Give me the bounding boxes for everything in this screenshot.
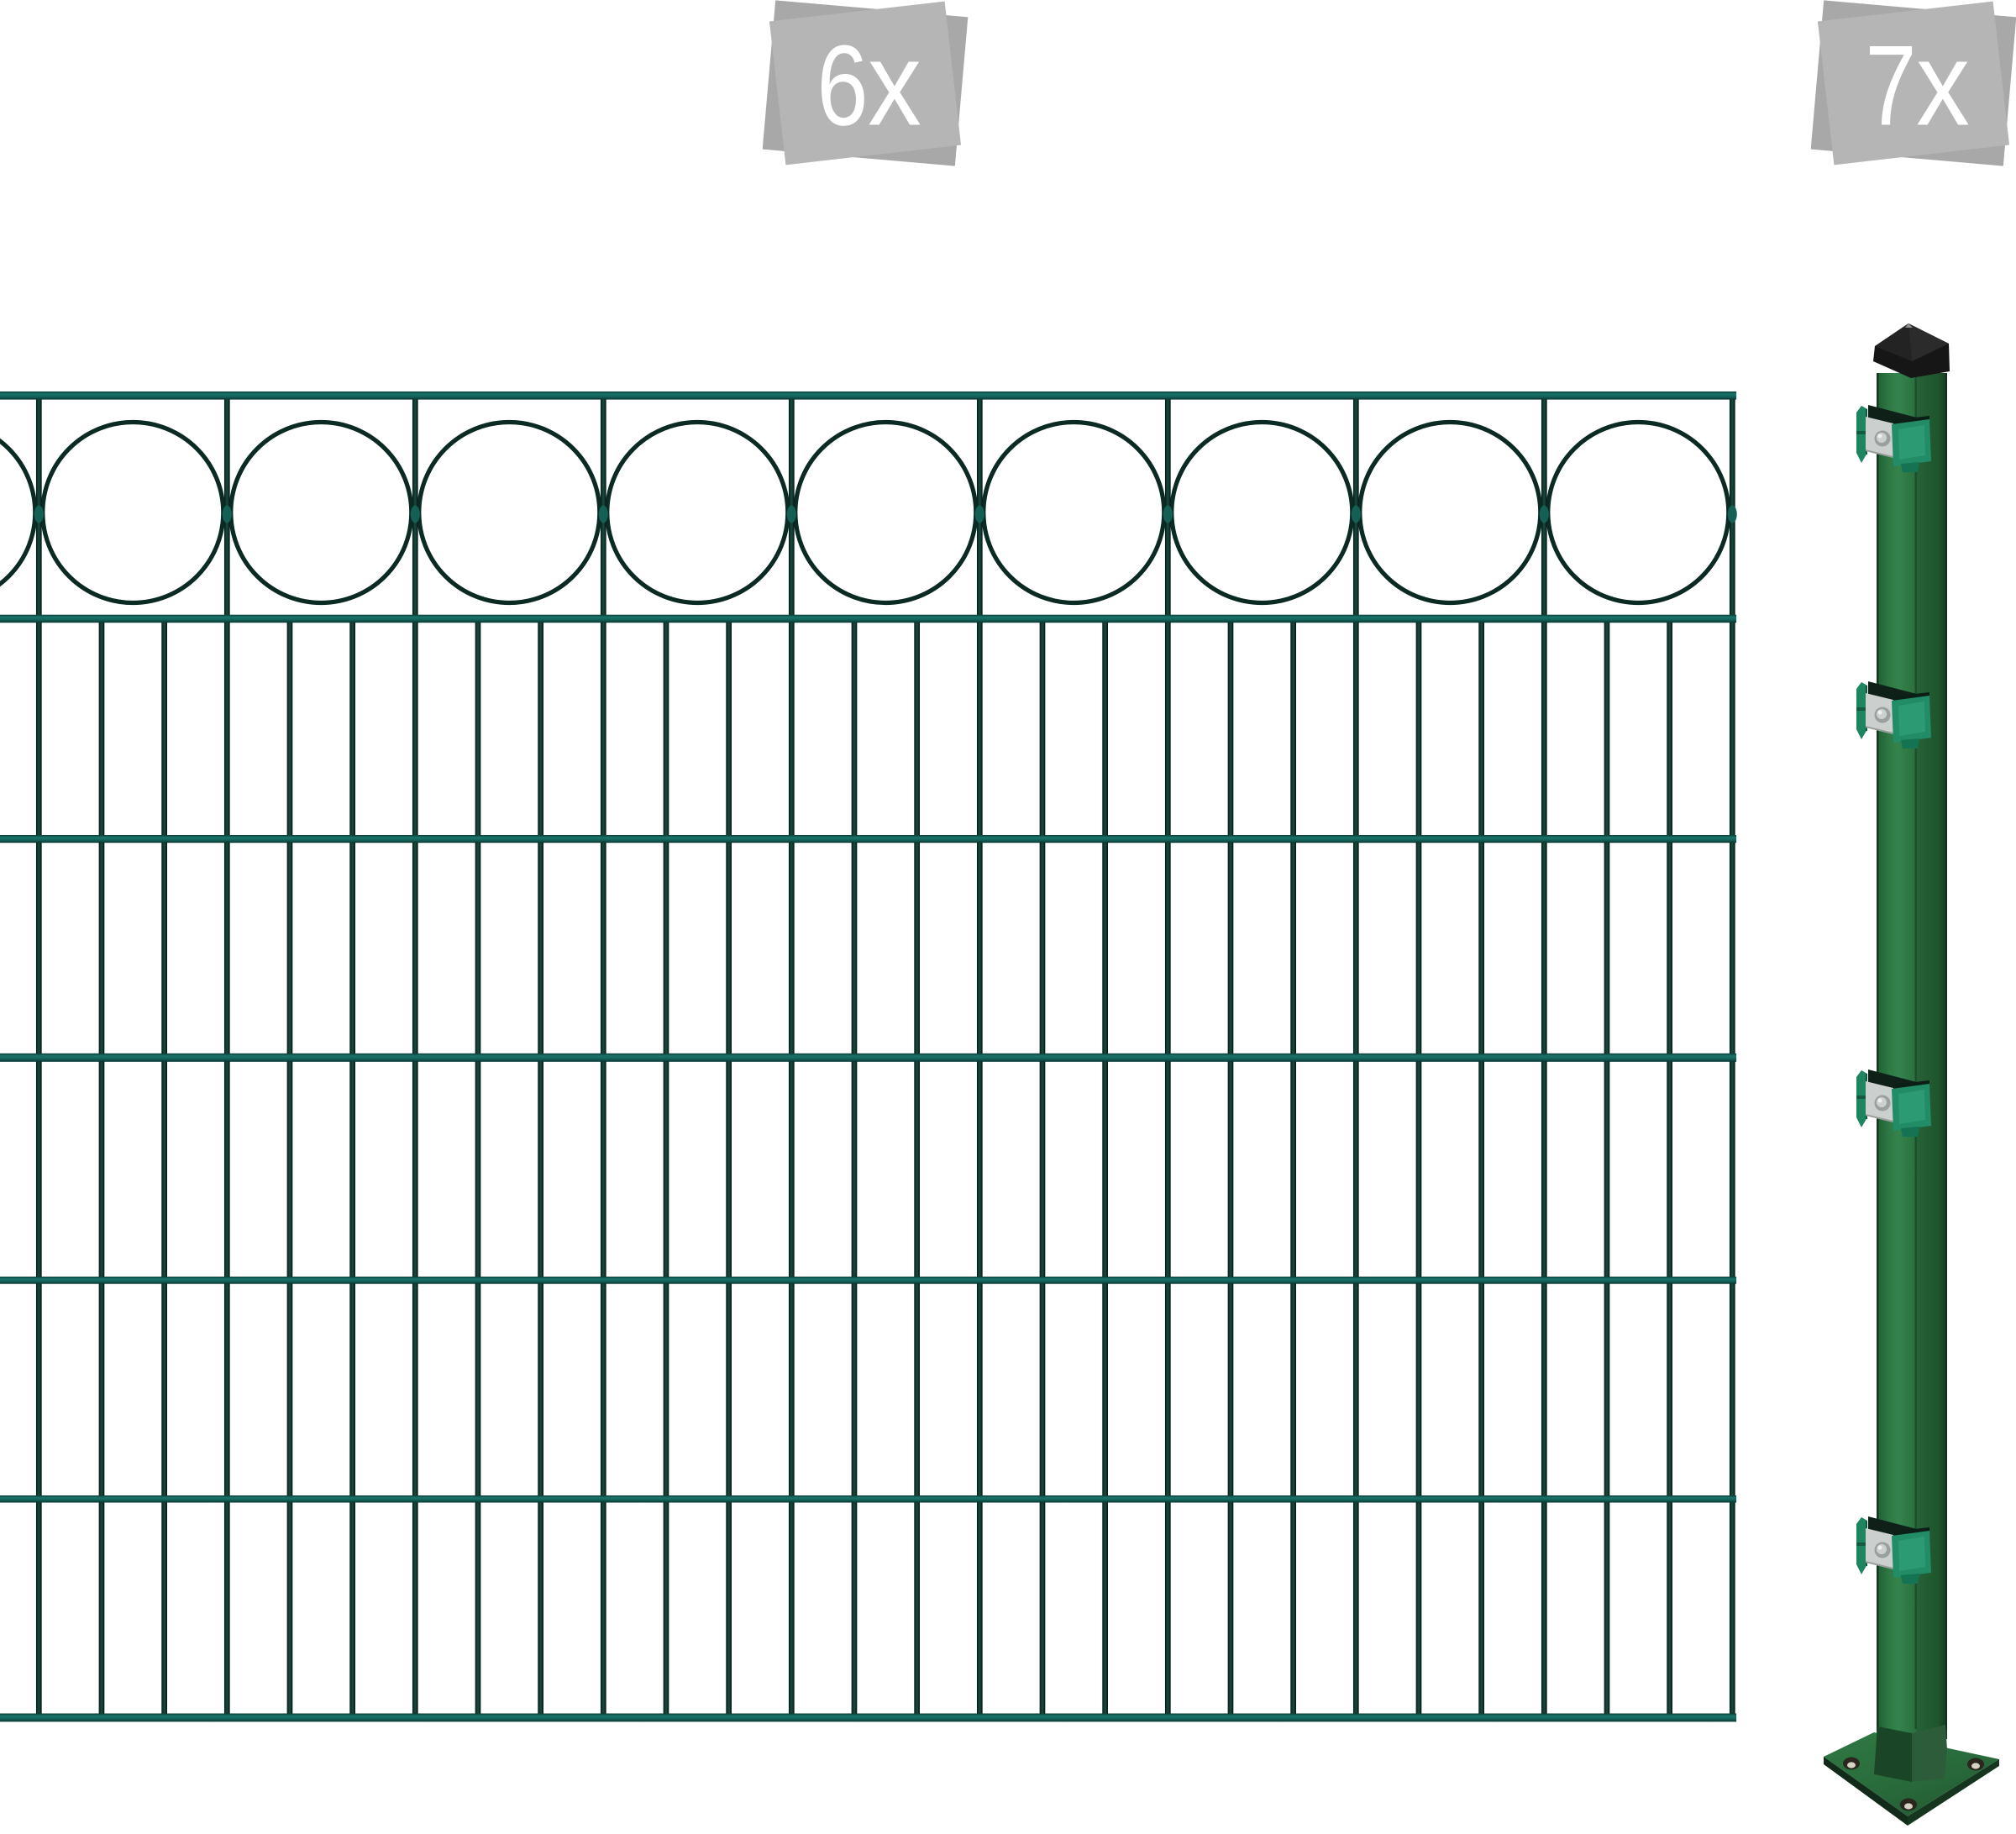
svg-text:x: x xyxy=(868,17,921,150)
svg-text:7: 7 xyxy=(1865,23,1916,150)
svg-text:6: 6 xyxy=(816,23,868,150)
svg-text:x: x xyxy=(1916,17,1970,150)
